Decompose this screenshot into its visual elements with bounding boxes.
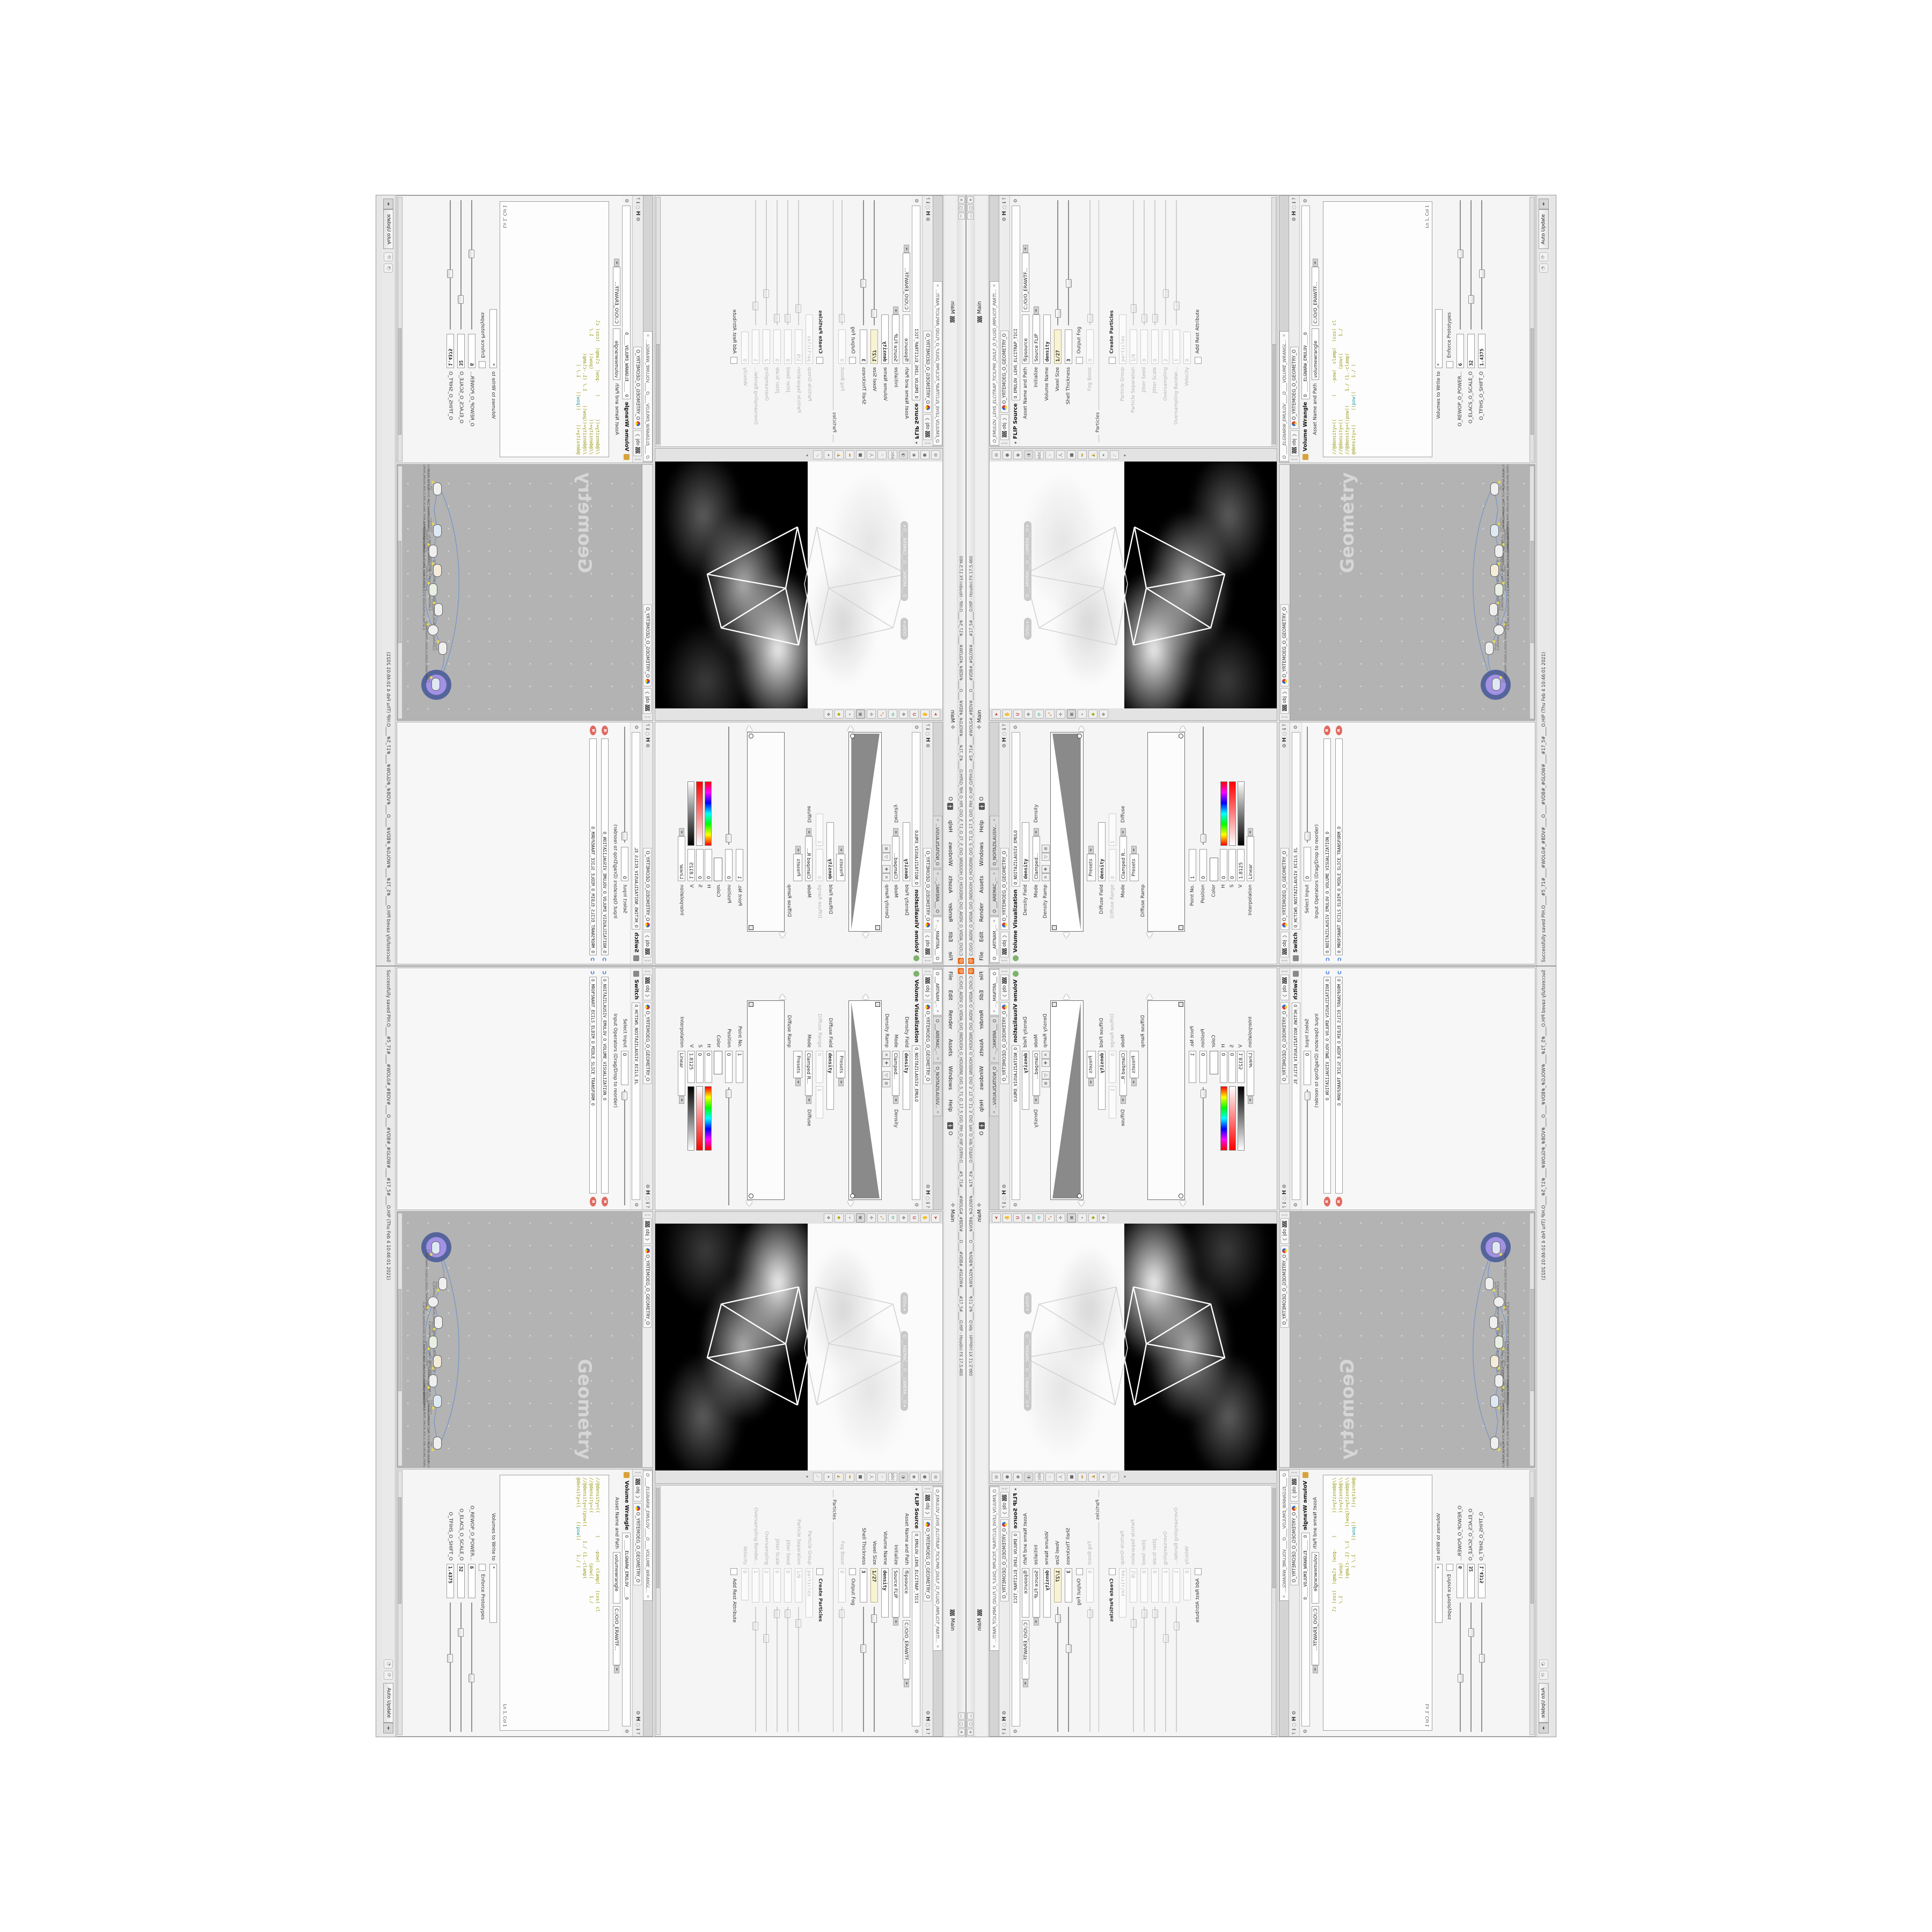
input-operator-item[interactable]: O_NOITAZILAUSIV_EMULOV_O_VOLUME_VISUALIZ… (601, 738, 609, 955)
scale-tool-icon[interactable]: ⤢ (1045, 1213, 1055, 1223)
nav-down-icon[interactable]: ⇩ (1005, 442, 1008, 445)
hue-slider[interactable] (705, 781, 712, 846)
spinner[interactable]: ◂▸ (1034, 1096, 1039, 1104)
help-icon[interactable]: ? (1002, 724, 1007, 727)
refresh-icon[interactable]: ⟳ (1539, 1671, 1548, 1680)
shift-slider[interactable] (447, 200, 454, 330)
hue-input[interactable]: 0 (705, 849, 712, 881)
context-crumb[interactable]: obj❯ (1280, 688, 1289, 714)
help-icon[interactable]: ? (1292, 1732, 1297, 1735)
node[interactable] (433, 1355, 442, 1368)
volumes-input[interactable]: * (489, 309, 497, 368)
ramp-key[interactable] (1179, 925, 1183, 930)
spinner[interactable]: ◂▸ (1034, 828, 1039, 836)
desktop-selector[interactable]: ✛ Main (977, 710, 983, 729)
grid-icon[interactable]: ▦ (1067, 1473, 1076, 1482)
diffuse-ramp-widget[interactable] (747, 1000, 785, 1200)
ramp-key[interactable] (1052, 1002, 1057, 1007)
nav-up-icon[interactable]: ⇧⇩ (925, 442, 931, 445)
nav-up-icon[interactable]: ⇧⇩ (1291, 1471, 1298, 1474)
shell-thickness-slider[interactable] (860, 1607, 867, 1732)
asset-name-input[interactable]: flipsource (1022, 1568, 1029, 1618)
drag-handle-icon[interactable]: ➲ (602, 968, 609, 977)
node[interactable] (1492, 1241, 1501, 1254)
power-input[interactable]: 6 (1457, 1564, 1464, 1598)
flipbook-tool-icon[interactable]: ❖ (824, 710, 833, 719)
nav-down-icon[interactable]: ⇩ (635, 458, 638, 461)
close-icon[interactable]: ✕ (1282, 334, 1286, 337)
jitter-seed-slider[interactable] (784, 1607, 792, 1732)
drag-handle-icon[interactable]: ➲ (602, 955, 609, 964)
remove-item-button[interactable]: ✖ (602, 726, 608, 735)
node[interactable] (429, 1336, 437, 1349)
drag-handle-icon[interactable]: ➲ (1324, 968, 1331, 977)
tool-7d-icon[interactable]: ▣ (1067, 1213, 1076, 1223)
add-rest-checkbox[interactable] (1195, 357, 1202, 364)
node-name-field[interactable]: O ____ELGNARW_EMULOV____O (623, 206, 631, 399)
spinner[interactable]: ◂▸ (838, 846, 844, 854)
render-tool-icon[interactable]: ◆ (1088, 1213, 1097, 1223)
info-icon[interactable]: ℹ (1002, 1729, 1007, 1730)
node[interactable] (1490, 1395, 1499, 1408)
minimize-button[interactable]: — (967, 1713, 974, 1719)
position-slider[interactable] (725, 727, 733, 845)
output-fog-checkbox[interactable] (1076, 357, 1083, 364)
menu-help[interactable]: Help (948, 815, 954, 837)
help-icon[interactable]: ? (1282, 724, 1287, 727)
spinner[interactable]: ◂▸ (1088, 846, 1094, 854)
node[interactable] (1495, 1374, 1503, 1387)
node-crumb[interactable]: O_YRTEMOEG_O_GEOMETRY_O (1280, 604, 1289, 686)
pose-tool-icon[interactable]: ✣ (867, 710, 876, 719)
node[interactable] (1490, 564, 1499, 577)
snap-tool-icon[interactable]: ⌖ (845, 1213, 854, 1223)
node[interactable] (433, 1437, 442, 1450)
horizontal-scrollbar[interactable] (1271, 197, 1276, 445)
gear-icon[interactable]: ⚙ (1013, 199, 1019, 203)
jitter-scale-slider[interactable] (1151, 200, 1159, 325)
move-tool-icon[interactable]: ✥ (899, 1213, 908, 1223)
diffuse-range-min[interactable]: 0 (1109, 849, 1116, 881)
close-icon[interactable]: ✕ (992, 872, 997, 875)
help-icon[interactable]: ? (1002, 1732, 1007, 1735)
saturation-input[interactable]: 0 (696, 849, 704, 881)
nav-up-icon[interactable]: ⇧⇩ (1001, 970, 1008, 973)
create-particles-checkbox[interactable] (1109, 357, 1116, 364)
layout-icon[interactable] (979, 1122, 985, 1129)
add-rest-checkbox[interactable] (731, 357, 738, 364)
close-icon[interactable]: ✕ (992, 1110, 997, 1114)
tab-visualization[interactable]: O_NOITAZILAUSIV...✕ (990, 816, 999, 868)
ramp-delete-button[interactable]: ✕ (1042, 873, 1050, 881)
render-tool-icon[interactable]: ◆ (835, 1213, 844, 1223)
shade-mode-icon[interactable]: ◑ (899, 1473, 908, 1482)
houdini-help-icon[interactable]: H (1001, 1190, 1007, 1195)
node-crumb[interactable]: O_YRTEMOEG_O_GEOMETRY_O (1000, 1002, 1009, 1084)
mode-select[interactable]: Clamped... (892, 836, 899, 881)
voxel-size-slider[interactable] (1054, 1607, 1062, 1732)
drag-handle-icon[interactable]: ➲ (1336, 968, 1343, 977)
update-mode-select[interactable]: Auto Update (383, 1683, 393, 1723)
ramp-delete-button[interactable]: ✕ (883, 1051, 891, 1059)
volume-name-input[interactable]: density (1043, 314, 1051, 364)
hue-input[interactable]: 0 (1220, 849, 1227, 881)
shell-thickness-input[interactable]: 3 (860, 1568, 867, 1602)
node[interactable] (433, 524, 442, 537)
enforce-prototypes-checkbox[interactable] (479, 361, 486, 368)
group-icon[interactable]: ⚭ (1099, 451, 1108, 460)
dots-icon[interactable]: ⁘ (877, 1473, 887, 1482)
nav-down-icon[interactable]: ⇩ (1005, 970, 1008, 973)
collapse-arrow-icon[interactable]: ▾ (914, 1488, 919, 1490)
pose-tool-icon[interactable]: ✣ (867, 1213, 876, 1223)
hue-slider[interactable] (1220, 1086, 1227, 1151)
ramp-pointer-right[interactable] (1180, 726, 1186, 731)
spinner[interactable]: ◂▸ (1313, 259, 1318, 267)
search-icon[interactable]: ◌ (645, 1196, 650, 1201)
tab-camera[interactable]: O ___AREMAC_...✕ (933, 869, 942, 916)
oversampling-slider[interactable] (763, 200, 770, 325)
node-crumb[interactable]: O_YRTEMOEG_O_GEOMETRY_O (924, 848, 932, 930)
horizontal-scrollbar[interactable] (398, 466, 402, 719)
velocity-input[interactable]: 0 (1183, 1568, 1191, 1600)
tab-visualization[interactable]: O_NOITAZILAUSIV...✕ (990, 1064, 999, 1116)
input-operator-item[interactable]: O_MROFSNART_ECILS_ELDIM_O_MIDLE_SLICE_TR… (589, 738, 597, 955)
select-input-field[interactable]: 0 (621, 1051, 628, 1085)
tab-flip-source[interactable]: O_EMULOV_LEHS_ELCITRAP_TICILPMI_DIULF_O_… (933, 281, 942, 445)
tool-7d-icon[interactable]: ▣ (856, 710, 865, 719)
camera-lock-icon[interactable]: ◉ (1013, 451, 1022, 460)
context-crumb[interactable]: obj❯ (1280, 1218, 1289, 1244)
desktop-selector[interactable]: ✛ Main (949, 710, 955, 729)
tab-flip-source[interactable]: O_EMULOV_LEHS_ELCITRAP_TICILPMI_DIULF_O_… (990, 281, 999, 445)
node[interactable] (1494, 625, 1504, 635)
diffuse-range-max[interactable]: 1 (816, 1086, 823, 1118)
context-crumb[interactable]: obj❯ (1000, 932, 1009, 957)
color-swatch[interactable] (1210, 858, 1218, 881)
close-icon[interactable]: ✕ (935, 1057, 940, 1060)
shade-mode-icon[interactable]: ◑ (899, 451, 908, 460)
close-icon[interactable]: ✕ (935, 1110, 940, 1114)
density-ramp-widget[interactable] (1050, 732, 1084, 932)
pose-tool-icon[interactable]: ✣ (1056, 710, 1065, 719)
search-icon[interactable]: ◌ (1002, 1723, 1007, 1727)
nav-down-icon[interactable]: ⇩ (635, 1471, 638, 1474)
shell-thickness-slider[interactable] (1065, 1607, 1072, 1732)
houdini-help-icon[interactable]: H (925, 211, 931, 215)
axis-icon[interactable]: 人 (867, 1473, 876, 1482)
hue-slider[interactable] (705, 1086, 712, 1151)
particle-group-input[interactable]: particles (1119, 1568, 1126, 1618)
spinner[interactable]: ◂▸ (1121, 828, 1126, 836)
node-crumb[interactable]: O_YRTEMOEG_O_GEOMETRY_O (643, 604, 652, 686)
group-icon[interactable]: ⚭ (824, 1473, 833, 1482)
position-input[interactable]: 0 (725, 849, 733, 881)
gear-icon[interactable]: ⚙ (925, 1710, 931, 1715)
volume-name-input[interactable]: density (881, 314, 889, 364)
gear-icon[interactable]: ⚙ (1303, 1729, 1308, 1733)
ramp-key[interactable] (1077, 1194, 1082, 1198)
node-crumb[interactable]: O_YRTEMOEG_O_GEOMETRY_O (643, 1246, 652, 1328)
render-tool-icon[interactable]: ◆ (1088, 710, 1097, 719)
dark-circle-icon[interactable]: ● (1002, 451, 1012, 460)
nav-down-icon[interactable]: ⇩ (925, 442, 928, 445)
pose-tool-icon[interactable]: ✣ (1056, 1213, 1065, 1223)
oversampling-input[interactable]: 2 (1162, 330, 1169, 364)
menu-edit[interactable]: Edit (948, 985, 954, 1005)
ramp-pointer-left[interactable] (1146, 933, 1153, 938)
ramp-key[interactable] (875, 925, 880, 930)
context-crumb[interactable]: obj❯ (1290, 430, 1299, 456)
close-icon[interactable]: ✕ (1282, 1595, 1286, 1598)
ramp-delete-button[interactable]: ✕ (883, 873, 891, 881)
diffuse-ramp-widget[interactable] (747, 732, 785, 932)
select-input-slider[interactable] (1304, 1089, 1311, 1205)
tab-volume-wrangle[interactable]: O ____ELGNARW_EMULOV____O____VOLUME_WRAN… (1279, 1470, 1289, 1601)
help-icon[interactable]: ? (1282, 1205, 1287, 1208)
nav-down-icon[interactable]: ⇩ (1294, 458, 1298, 461)
fog-boost-input[interactable]: 0 (1086, 1568, 1094, 1602)
gear-icon[interactable]: ⚙ (1013, 1729, 1019, 1733)
info-icon[interactable]: ℹ (1002, 728, 1007, 730)
volumes-input[interactable]: * (489, 1564, 497, 1623)
houdini-help-icon[interactable]: H (925, 1717, 931, 1721)
houdini-help-icon[interactable]: H (1291, 211, 1297, 215)
ramp-type-button[interactable]: ▽ (883, 1071, 891, 1079)
node[interactable] (433, 564, 442, 577)
particle-group-input[interactable]: particles (806, 314, 813, 364)
layout-icon[interactable] (948, 1122, 954, 1129)
shell-thickness-input[interactable]: 3 (860, 330, 867, 364)
node[interactable] (1485, 642, 1494, 655)
horizontal-scrollbar[interactable] (656, 197, 661, 445)
position-input[interactable]: 0 (725, 1051, 733, 1083)
density-field-input[interactable]: density (1022, 1051, 1029, 1110)
nav-down-icon[interactable]: ⇩ (645, 959, 648, 962)
diffuse-ramp-widget[interactable] (1147, 732, 1185, 932)
select-input-slider[interactable] (621, 727, 628, 843)
close-icon[interactable]: ✕ (935, 818, 940, 822)
menu-windows[interactable]: Windows (979, 1061, 985, 1095)
context-crumb[interactable]: obj❯ (924, 1492, 932, 1518)
view-mode-pill[interactable]: Ortho ▾ (901, 618, 908, 640)
ruler-icon[interactable]: abc (1035, 451, 1044, 460)
hue-input[interactable]: 0 (1220, 1051, 1227, 1083)
info-icon[interactable]: ℹ (1292, 1729, 1297, 1730)
nav-up-icon[interactable]: ⇧⇩ (925, 1487, 931, 1490)
gear-icon[interactable]: ⚙ (1282, 1184, 1287, 1188)
maximize-button[interactable]: ▢ (967, 1721, 974, 1728)
nav-up-icon[interactable]: ⇧⇩ (635, 458, 641, 461)
context-crumb[interactable]: obj❯ (643, 932, 652, 957)
fog-boost-input[interactable]: 0 (838, 1568, 846, 1602)
ramp-key[interactable] (1077, 734, 1082, 738)
context-crumb[interactable]: obj❯ (924, 932, 932, 957)
node[interactable] (438, 1277, 447, 1290)
ramp-key[interactable] (875, 1002, 880, 1007)
node[interactable] (433, 1395, 442, 1408)
tab-visualization[interactable]: O_NOITAZILAUSIV...✕ (933, 1064, 942, 1116)
spinner[interactable]: ◂▸ (1088, 1078, 1094, 1086)
select-tool-icon[interactable]: ➤ (992, 1213, 1001, 1223)
horizontal-scrollbar[interactable] (656, 1487, 661, 1735)
snap-tool-icon[interactable]: ⌖ (845, 710, 854, 719)
maximize-button[interactable]: ▢ (958, 1721, 965, 1728)
asset-path-input[interactable]: C:/O/O_ERAWTF... (613, 267, 620, 326)
shell-thickness-input[interactable]: 3 (1065, 330, 1072, 364)
voxel-size-slider[interactable] (870, 200, 878, 325)
node-name-field[interactable]: O_NOITAZILAUSIV_EMULO (1012, 732, 1020, 887)
scale-input[interactable]: 32 (1467, 1564, 1475, 1598)
view-layout-icon[interactable]: ⊞ (992, 451, 1001, 460)
spinner[interactable]: ◂▸ (1121, 1096, 1126, 1104)
point-no-input[interactable]: 1 (736, 849, 743, 881)
ramp-view-button[interactable]: ⊞ (1042, 1079, 1050, 1087)
houdini-help-icon[interactable]: H (925, 737, 931, 742)
menu-assets[interactable]: Assets (979, 1034, 985, 1062)
menu-render[interactable]: Render (948, 898, 954, 927)
horizontal-scrollbar[interactable] (1529, 466, 1534, 719)
dots-icon[interactable]: ⁘ (877, 451, 887, 460)
horizontal-scrollbar[interactable] (398, 197, 402, 462)
view-mode-pill[interactable]: Ortho ▾ (1024, 618, 1031, 640)
comet-icon[interactable]: ☄ (813, 1473, 822, 1482)
info-icon[interactable]: ℹ (645, 1202, 650, 1204)
shell-thickness-input[interactable]: 3 (1065, 1568, 1072, 1602)
oversampling-input[interactable]: 2 (763, 1568, 770, 1602)
point-no-input[interactable]: 1 (1189, 1051, 1196, 1083)
desktop-selector-2[interactable]: Main (977, 301, 983, 323)
scale-tool-icon[interactable]: ⤢ (877, 710, 887, 719)
viewport-canvas[interactable]: Ortho ▾ O ___AREMAC___O___CAMERA___O ▾ (990, 1224, 1277, 1470)
ramp-pointer-right[interactable] (847, 726, 854, 731)
ramp-type-button[interactable]: ▽ (1042, 853, 1050, 861)
nav-down-icon[interactable]: ⇩ (1005, 1487, 1008, 1490)
gear-icon[interactable]: ⚙ (1293, 1203, 1299, 1207)
gear-icon[interactable]: ⚙ (1002, 743, 1007, 748)
fog-boost-slider[interactable] (838, 200, 846, 325)
select-input-field[interactable]: 0 (1304, 847, 1311, 881)
fog-boost-input[interactable]: 0 (1086, 330, 1094, 364)
menu-windows[interactable]: Windows (948, 837, 954, 871)
gear-icon[interactable]: ⚙ (624, 1729, 630, 1733)
node[interactable] (1489, 1316, 1498, 1329)
menu-file[interactable]: File (948, 967, 954, 985)
refresh-icon[interactable]: ⟳ (384, 1671, 393, 1680)
spinner[interactable]: ◂▸ (893, 1096, 898, 1104)
close-icon[interactable]: ✕ (992, 1645, 997, 1648)
tab-volume-wrangle[interactable]: O ____ELGNARW_EMULOV____O____VOLUME_WRAN… (643, 1470, 653, 1601)
remove-item-button[interactable]: ✖ (1324, 726, 1330, 735)
close-icon[interactable]: ✕ (935, 919, 940, 923)
mode-select[interactable]: Clamped... (1033, 836, 1040, 881)
node[interactable] (1495, 545, 1503, 558)
node-name-field[interactable]: O_EMULOV_LEHS_ELCITRAP_TICI (912, 206, 921, 400)
dots-icon[interactable]: ⁘ (1045, 1473, 1055, 1482)
scale-slider[interactable] (1467, 200, 1475, 330)
voxel-size-input[interactable]: 1/27 (1054, 330, 1062, 364)
search-icon[interactable]: ◌ (1282, 731, 1287, 736)
hue-input[interactable]: 0 (705, 1051, 712, 1083)
particle-separation-input[interactable]: 1/9 (1130, 1568, 1137, 1602)
info-icon[interactable]: ℹ (925, 1729, 931, 1730)
title-bar[interactable]: @ C:/O/O_AIDIV_O_VIDIA_O/O_INIDUOH_O_HOU… (967, 967, 976, 1737)
close-icon[interactable]: ✕ (935, 1009, 940, 1013)
context-crumb[interactable]: obj❯ (634, 1476, 642, 1502)
node[interactable] (433, 482, 442, 495)
spinner[interactable]: ◂▸ (893, 1618, 898, 1626)
shade-mode-icon[interactable]: ◑ (1024, 1473, 1033, 1482)
diffuse-field-input[interactable]: density (826, 822, 834, 881)
nav-up-icon[interactable]: ⇧⇩ (1282, 715, 1288, 719)
title-bar[interactable]: @ C:/O/O_AIDIV_O_VIDIA_O/O_INIDUOH_O_HOU… (956, 967, 965, 1737)
nav-up-icon[interactable]: ⇧⇩ (645, 970, 651, 973)
remove-item-button[interactable]: ✖ (1336, 1197, 1342, 1206)
search-icon[interactable]: ◌ (1002, 731, 1007, 736)
velocity-input[interactable]: 0 (1183, 332, 1191, 364)
refresh-icon[interactable]: ⟳ (1539, 252, 1548, 261)
jitter-seed-slider[interactable] (1140, 200, 1148, 325)
view-layout-icon[interactable]: ⊞ (931, 1473, 940, 1482)
position-slider[interactable] (725, 1087, 733, 1205)
fog-boost-slider[interactable] (1086, 1607, 1094, 1732)
help-icon[interactable]: ? (635, 197, 641, 200)
mode-select[interactable]: Clamped R... (1119, 836, 1127, 881)
title-bar[interactable]: @ C:/O/O_AIDIV_O_VIDIA_O/O_INIDUOH_O_HOU… (967, 195, 976, 965)
node-crumb[interactable]: O_YRTEMOEG_O_GEOMETRY_O (1290, 1503, 1299, 1585)
particle-separation-slider[interactable] (1130, 200, 1137, 325)
help-icon[interactable]: ? (645, 1205, 650, 1208)
asset-name-input[interactable]: flipsource (903, 314, 910, 364)
context-crumb[interactable]: obj❯ (1280, 975, 1289, 1000)
spinner[interactable]: ◂▸ (614, 259, 619, 267)
update-mode-arrows[interactable]: ◂▸ (1539, 199, 1549, 209)
shade-mode-icon[interactable]: ◑ (1024, 451, 1033, 460)
close-button[interactable]: ✕ (958, 1729, 965, 1736)
hand-tool-icon[interactable]: ✋ (920, 710, 930, 719)
node-crumb[interactable]: O_YRTEMOEG_O_GEOMETRY_O (1000, 848, 1009, 930)
asset-path-input[interactable]: C:/O/O_ERAWTF... (903, 253, 910, 312)
jitter-scale-input[interactable]: 0 (1151, 330, 1159, 364)
nav-up-icon[interactable]: ⇧⇩ (1282, 959, 1288, 962)
play-icon[interactable]: ▸ (803, 451, 811, 459)
node-name-field[interactable]: O_NOITAZILAUSIV_EMULO (1012, 1045, 1020, 1200)
jitter-seed-slider[interactable] (784, 200, 792, 325)
enforce-prototypes-checkbox[interactable] (1446, 361, 1453, 368)
tab-camera[interactable]: O ___AREMAC_...✕ (990, 869, 999, 916)
update-mode-select[interactable]: Auto Update (1539, 1683, 1549, 1723)
value-slider[interactable] (688, 1086, 695, 1151)
gear-icon[interactable]: ⚙ (925, 217, 931, 221)
network-canvas[interactable]: Geometry TransformO_MROFSNART_TLUSER_O_R… (397, 465, 642, 720)
node-name-field[interactable]: O_EMULOV_LEHS_ELCITRAP_TICI (912, 1532, 921, 1726)
spinner[interactable]: ◂▸ (1313, 1665, 1318, 1673)
houdini-help-icon[interactable]: H (1001, 1717, 1007, 1721)
ramp-type-button[interactable]: ▽ (883, 853, 891, 861)
gear-icon[interactable]: ⚙ (925, 1184, 931, 1188)
snap-tool-icon[interactable]: ⌖ (1078, 1213, 1087, 1223)
node[interactable] (434, 1316, 443, 1329)
ramp-add-button[interactable]: ✚ (1042, 865, 1050, 873)
diffuse-range-min[interactable]: 0 (816, 1051, 823, 1083)
spinner[interactable]: ◂▸ (679, 1096, 684, 1104)
maximize-button[interactable]: ▢ (967, 204, 974, 211)
shell-thickness-slider[interactable] (1065, 200, 1072, 325)
rotate-tool-icon[interactable]: ⟳ (888, 710, 897, 719)
info-icon[interactable]: ℹ (1002, 1202, 1007, 1204)
node-name-field[interactable]: O_EMULOV_LEHS_ELCITRAP_TICI (1012, 1532, 1020, 1726)
help-icon[interactable]: ? (1002, 1205, 1007, 1208)
